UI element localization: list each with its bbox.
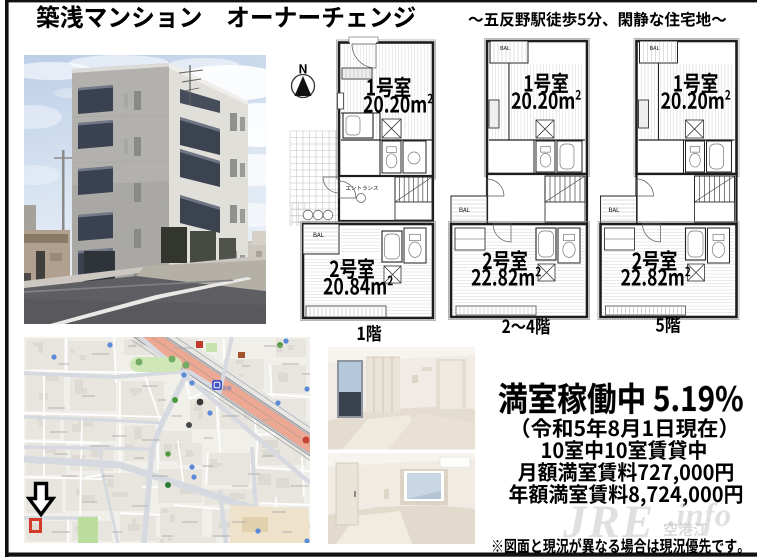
svg-text:.info: .info — [668, 498, 731, 534]
